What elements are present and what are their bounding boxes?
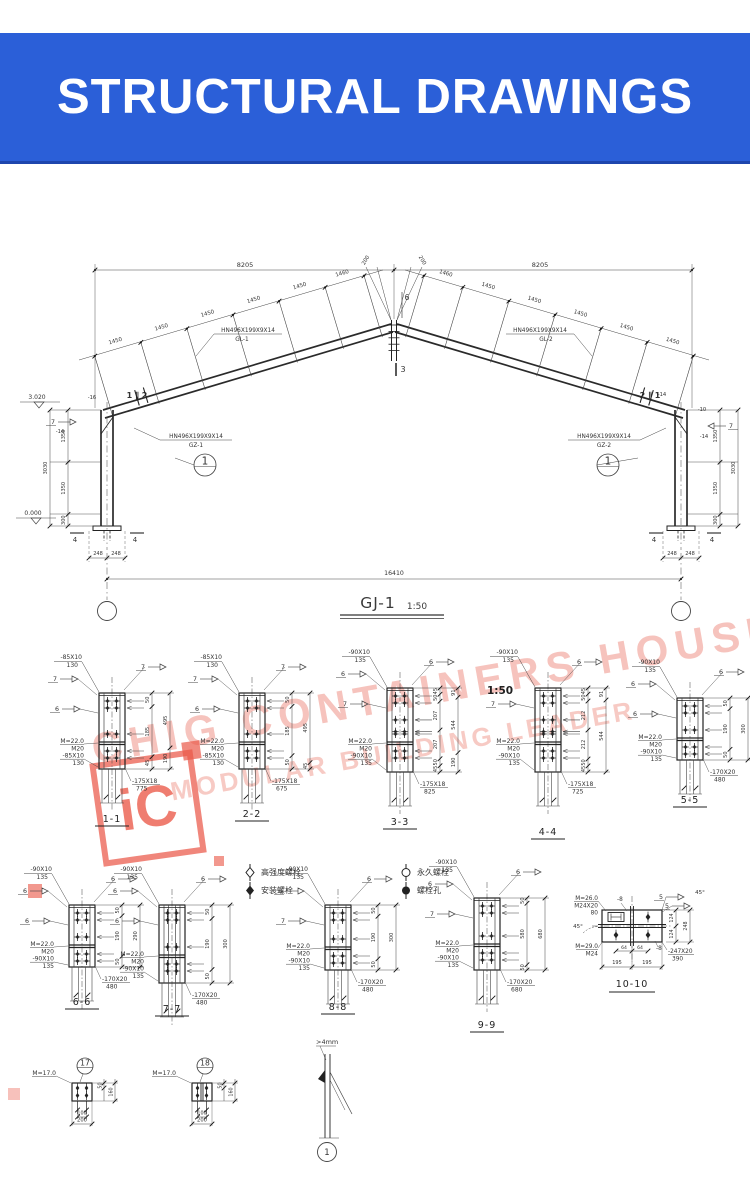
dim-label: 45 [433, 688, 439, 694]
plate-size-label: -170X20 [507, 979, 533, 986]
dim-label: 248 [93, 551, 103, 557]
section-title: 7-7 [163, 1004, 182, 1015]
dim-label: 248 [683, 921, 689, 930]
plate-size-label: -90X10 [435, 859, 457, 866]
plate-size-label: 480 [714, 777, 726, 784]
dim-label: 300 [223, 939, 229, 949]
plate-size-label: -90X10 [496, 649, 518, 656]
weld-flag-label: 7 [343, 701, 347, 708]
plate-size-label: -170X20 [192, 992, 218, 999]
section-detail-3-3: 4550207207504591544190-90X10135667M=22.0… [336, 649, 462, 829]
weld-flag-label: 7 [491, 701, 495, 708]
plate-size-label: 775 [136, 786, 148, 793]
plate-size-label: -90X10 [30, 866, 52, 873]
ridge-section-mark: 3 [400, 365, 405, 374]
section-detail-8-8: 5019050300-90X10135667M=22.0M20-90X10135… [274, 866, 400, 1014]
dim-label: 50 [581, 759, 587, 765]
dim-label: 16410 [384, 570, 404, 577]
dim-label: 1450 [481, 282, 496, 292]
section-title: 4-4 [539, 827, 558, 838]
bolt-spec-label: -90X10 [437, 955, 459, 962]
section-detail-1-1: 5018545495190-85X10130776M=22.0M20-85X10… [48, 654, 174, 826]
plate-size-label: -90X10 [120, 866, 142, 873]
weld-flag-label: 7 [193, 676, 197, 683]
dim-label: 300 [61, 515, 67, 525]
plate-size-label: -175X18 [272, 778, 298, 785]
dim-label: 45 [433, 766, 439, 772]
plate-size-label: -90X10 [638, 659, 660, 666]
elevation-label: 3.020 [28, 394, 45, 401]
bolt-spec-label: M20 [649, 741, 662, 748]
dim-label: 45 [581, 688, 587, 694]
bolt-spec-label: M20 [446, 947, 459, 954]
weld-flag-label: 5 [659, 894, 663, 901]
dim-label: 1450 [154, 323, 169, 333]
dim-label: 200 [77, 1118, 87, 1124]
bolt-spec-label: 135 [509, 760, 521, 767]
dim-label: 190 [371, 933, 377, 943]
plate-size-label: -175X18 [420, 781, 446, 788]
weld-flag-label: 7 [430, 911, 434, 918]
grid-bubble [98, 602, 117, 621]
anchor-spec-label: M=17.0 [32, 1070, 56, 1077]
apex-section-mark: 6 [405, 293, 410, 302]
dim-label: 300 [713, 515, 719, 525]
plate-size-label: 135 [127, 874, 139, 881]
section-detail-7-7: 5019050300-90X10135666M=22.0M20-90X10135… [108, 866, 234, 1025]
dim-label: 300 [741, 724, 747, 734]
dim-label: 50 [115, 907, 121, 913]
plate-size-label: 130 [207, 662, 219, 669]
dim-label: 544 [599, 731, 605, 741]
base-section-mark: 4 [652, 536, 657, 544]
dim-label: 91 [599, 691, 605, 697]
plate-size-label: 390 [672, 957, 683, 963]
dim-label: 50 [205, 909, 211, 915]
bolt-spec-label: 135 [43, 963, 55, 970]
bolt-spec-label: M=22.0 [638, 734, 662, 741]
plate-size-label: -175X18 [132, 778, 158, 785]
dim-label: 1450 [527, 295, 542, 305]
dim-label: 50 [520, 897, 526, 903]
member-label: GL-1 [235, 337, 249, 343]
dim-label: 1350 [713, 430, 719, 443]
plate-size-label: -170X20 [710, 769, 736, 776]
bolt-spec-label: M20 [41, 948, 54, 955]
plate-size-label: 135 [293, 874, 305, 881]
dim-label: 1450 [246, 295, 261, 305]
dim-label: 300 [389, 933, 395, 943]
dim-label: 50 [723, 751, 729, 757]
member-label: HN496X199X9X14 [169, 434, 223, 440]
plate-size-label: 680 [511, 987, 523, 994]
weld-flag-label: 7 [729, 423, 733, 430]
plate-size-label: -85X10 [200, 654, 222, 661]
weld-flag-label: 6 [341, 671, 345, 678]
weld-flag-label: 6 [631, 681, 635, 688]
weld-flag-label: 6 [55, 706, 59, 713]
bolt-spec-label: 130 [213, 760, 225, 767]
section-title: 5-5 [681, 795, 700, 806]
plate-size-label: 135 [355, 657, 367, 664]
detail-callout-number: 1 [605, 456, 612, 468]
dim-label: 1460 [335, 269, 350, 279]
bolt-spec-label: M20 [297, 950, 310, 957]
dim-label: 3030 [731, 462, 737, 475]
detail-callout-number: 1 [324, 1148, 329, 1158]
section-detail-2-2: 501855049545-85X10130776M=22.0M20-85X101… [188, 654, 314, 821]
dim-label: -10 [698, 407, 706, 413]
dim-label: 248 [667, 551, 677, 557]
bolt-spec-label: M20 [211, 745, 224, 752]
plate-size-label: 130 [67, 662, 79, 669]
dim-label: 195 [642, 960, 652, 966]
dim-label: 200 [197, 1118, 207, 1124]
bolt-spec-label: 135 [651, 756, 663, 763]
dim-label: 290 [133, 931, 139, 941]
plate-size-label: -247X20 [668, 949, 693, 955]
weld-angle-label: 45° [695, 890, 705, 896]
dim-label: 1460 [438, 269, 453, 279]
dim-label: 1450 [619, 323, 634, 333]
footer-base-detail-17: 17M=17.010020050160 [32, 1058, 118, 1126]
bolt-spec-label: 130 [73, 760, 85, 767]
dim-label: 3030 [43, 462, 49, 475]
dim-label: 212 [581, 740, 587, 750]
section-title: 2-2 [243, 809, 262, 820]
plate-size-label: 135 [645, 667, 657, 674]
plate-size-label: 725 [572, 789, 584, 796]
section-title: 3-3 [391, 817, 410, 828]
dim-label: -16 [88, 395, 96, 401]
dim-label: 200 [361, 255, 371, 267]
section-title: 10-10 [616, 979, 649, 990]
dim-label: 680 [538, 929, 544, 939]
member-label: HN496X199X9X14 [513, 328, 567, 334]
dim-label: 248 [111, 551, 121, 557]
dim-label: 45 [145, 760, 151, 766]
bolt-spec-label: M20 [359, 745, 372, 752]
bolt-spec-label: -90X10 [122, 966, 144, 973]
dim-label: 64 [637, 945, 643, 951]
weld-flag-label: 6 [195, 706, 199, 713]
base-section-mark: 4 [710, 536, 715, 544]
section-detail-9-9: 5058050680-90X10135667M=22.0M20-90X10135… [423, 859, 549, 1032]
plate-size-label: -90X10 [348, 649, 370, 656]
dim-label: 1450 [292, 282, 307, 292]
weld-flag-label: 7 [53, 676, 57, 683]
dim-label: 8205 [237, 261, 254, 269]
section-detail-6-6: 5019050290-90X10135666M=22.0M20-90X10135… [18, 866, 144, 1009]
dim-label: 50 [433, 759, 439, 765]
dim-label: 160 [229, 1087, 235, 1096]
plate-size-label: 480 [106, 984, 118, 991]
dim-label: 1350 [713, 482, 719, 495]
main-frame-drawing: 8205820514501450145014501450145014501450… [16, 255, 740, 621]
dim-label: 1450 [665, 337, 680, 347]
drawing-title: GJ-1 [360, 594, 395, 612]
dim-label: -14 [56, 429, 65, 435]
structural-drawings-page: STRUCTURAL DRAWINGS CHIG CONTAINERS HOUS… [0, 0, 750, 1192]
plate-size-label: -170X20 [358, 979, 384, 986]
anchor-spec-label: M=17.0 [152, 1070, 176, 1077]
dim-label: 50 [581, 694, 587, 700]
drawing-scale: 1:50 [407, 602, 427, 612]
bolt-spec-label: M=22.0 [30, 941, 54, 948]
footer-weld-detail: >4mm1 [316, 1038, 352, 1162]
bolt-spec-label: -90X10 [498, 753, 520, 760]
weld-flag-label: 6 [428, 881, 432, 888]
dim-label: 100 [197, 1111, 206, 1117]
dim-label: 50 [115, 958, 121, 964]
dim-label: 248 [685, 551, 695, 557]
anchor-spec-label: 80 [591, 911, 599, 917]
anchor-spec-label: M=29.0 [575, 944, 598, 950]
detail-callout-number: 1 [202, 456, 209, 468]
dim-label: 1350 [61, 482, 67, 495]
weld-flag-label: 6 [25, 918, 29, 925]
anchor-spec-label: M24 [586, 951, 599, 957]
weld-flag-label: 6 [279, 888, 283, 895]
anchor-spec-label: M24X20 [574, 903, 598, 909]
bolt-spec-label: M=22.0 [120, 951, 144, 958]
section-title: 9-9 [478, 1020, 497, 1031]
bolt-spec-label: M20 [131, 958, 144, 965]
page-title-banner: STRUCTURAL DRAWINGS [0, 33, 750, 164]
grid-bubble [672, 602, 691, 621]
plate-size-label: 480 [196, 1000, 208, 1007]
detail-callout-number: 18 [200, 1059, 210, 1068]
dim-label: -14 [700, 434, 709, 440]
dim-label: 100 [77, 1111, 86, 1117]
weld-flag-label: 6 [115, 918, 119, 925]
dim-label: 190 [723, 724, 729, 734]
plate-size-label: 135 [37, 874, 49, 881]
bolt-spec-label: -90X10 [640, 749, 662, 756]
member-label: HN496X199X9X14 [577, 434, 631, 440]
plate-size-label: 675 [276, 786, 288, 793]
section-detail-4-4: 4550212212504591544-90X1013567M=22.0M20-… [486, 649, 610, 839]
anchor-spec-label: M=26.0 [575, 896, 598, 902]
weld-note: >4mm [316, 1038, 338, 1046]
weld-flag-label: 6 [113, 888, 117, 895]
section-detail-5-5: 5019050300-90X10135666M=22.0M20-90X10135… [626, 659, 750, 807]
member-label: GL-2 [539, 337, 553, 343]
base-section-mark: 4 [73, 536, 78, 544]
bolt-spec-label: M=22.0 [496, 738, 520, 745]
bolt-spec-label: 135 [299, 965, 311, 972]
dim-label: 190 [205, 939, 211, 949]
bolt-spec-label: M=22.0 [348, 738, 372, 745]
dim-label: 91 [451, 689, 457, 695]
member-label: HN496X199X9X14 [221, 328, 275, 334]
dim-label: -14 [658, 392, 667, 398]
dim-label: 8205 [532, 261, 549, 269]
scale-note: 1:50 [487, 685, 513, 697]
dim-label: 50 [723, 700, 729, 706]
dim-label: 190 [451, 758, 457, 768]
dim-label: 495 [163, 716, 169, 726]
member-label: GZ-1 [189, 443, 203, 449]
dim-label: 50 [218, 1082, 224, 1088]
base-section-mark: 4 [133, 536, 138, 544]
dim-label: 50 [98, 1082, 104, 1088]
bolt-spec-label: M=22.0 [60, 738, 84, 745]
detail-callout-number: 17 [80, 1059, 90, 1068]
member-label: GZ-2 [597, 443, 611, 449]
weld-flag-label: 6 [23, 888, 27, 895]
dim-label: 212 [581, 711, 587, 721]
bolt-spec-label: M20 [71, 745, 84, 752]
dim-label: 50 [371, 907, 377, 913]
dim-label: 50 [205, 973, 211, 979]
dim-label: 50 [145, 697, 151, 703]
section-title: 1-1 [103, 814, 122, 825]
dim-label: 1450 [200, 309, 215, 319]
dim-label: 207 [433, 740, 439, 750]
dim-label: 124 [669, 929, 675, 938]
bolt-spec-label: M=22.0 [200, 738, 224, 745]
plate-size-label: 135 [442, 867, 454, 874]
page-title: STRUCTURAL DRAWINGS [57, 69, 693, 125]
dim-label: 200 [417, 255, 427, 267]
bolt-spec-label: 135 [133, 973, 145, 980]
dim-label: 45 [581, 766, 587, 772]
dim-label: 160 [109, 1087, 115, 1096]
bolt-spec-label: 135 [361, 760, 373, 767]
plate-size-label: 825 [424, 789, 436, 796]
bolt-spec-label: M=22.0 [286, 943, 310, 950]
dim-label: 190 [115, 931, 121, 941]
bolt-spec-label: 135 [448, 962, 460, 969]
dim-label: 50 [285, 759, 291, 765]
bolt-spec-label: -85X10 [202, 753, 224, 760]
plate-size-label: -170X20 [102, 976, 128, 983]
dim-label: 544 [451, 720, 457, 730]
plate-mark: -8 [617, 897, 623, 903]
plate-size-label: -85X10 [60, 654, 82, 661]
dim-label: 195 [612, 960, 622, 966]
bolt-spec-label: -90X10 [288, 958, 310, 965]
footer-base-detail-18: 18M=17.010020050160 [152, 1058, 238, 1126]
dim-label: 50 [285, 696, 291, 702]
dim-label: 580 [520, 929, 526, 939]
weld-angle-label: 45° [573, 924, 583, 930]
dim-label: 64 [621, 945, 627, 951]
section-title: 6-6 [73, 997, 92, 1008]
section-detail-10-10: M=26.0M24X2080M=29.0M24-8-8-247X20390554… [573, 890, 705, 992]
dim-label: 1450 [108, 337, 123, 347]
plate-size-label: -90X10 [286, 866, 308, 873]
dim-label: 124 [669, 913, 675, 922]
bolt-spec-label: -85X10 [62, 753, 84, 760]
dim-label: 50 [520, 964, 526, 970]
bolt-spec-label: -90X10 [32, 956, 54, 963]
cad-drawing-svg: 8205820514501450145014501450145014501450… [0, 170, 750, 1192]
bolt-spec-label: -90X10 [350, 753, 372, 760]
plate-size-label: 480 [362, 987, 374, 994]
dim-label: 495 [303, 723, 309, 733]
bolt-spec-label: M20 [507, 745, 520, 752]
dim-label: 185 [145, 727, 151, 737]
dim-label: 185 [285, 726, 291, 736]
dim-label: 45 [303, 763, 309, 769]
dim-label: 207 [433, 711, 439, 721]
plate-size-label: 135 [503, 657, 515, 664]
plate-mark: -8 [656, 946, 662, 952]
elevation-label: 0.000 [24, 510, 41, 517]
dim-label: 190 [163, 754, 169, 764]
dim-label: 50 [371, 961, 377, 967]
weld-flag-label: 7 [51, 419, 55, 426]
section-title: 8-8 [329, 1002, 348, 1013]
weld-flag-label: 6 [633, 711, 637, 718]
dim-label: 50 [433, 695, 439, 701]
bolt-spec-label: M=22.0 [435, 940, 459, 947]
weld-flag-label: 7 [281, 918, 285, 925]
dim-label: 1450 [573, 309, 588, 319]
plate-size-label: -175X18 [568, 781, 594, 788]
